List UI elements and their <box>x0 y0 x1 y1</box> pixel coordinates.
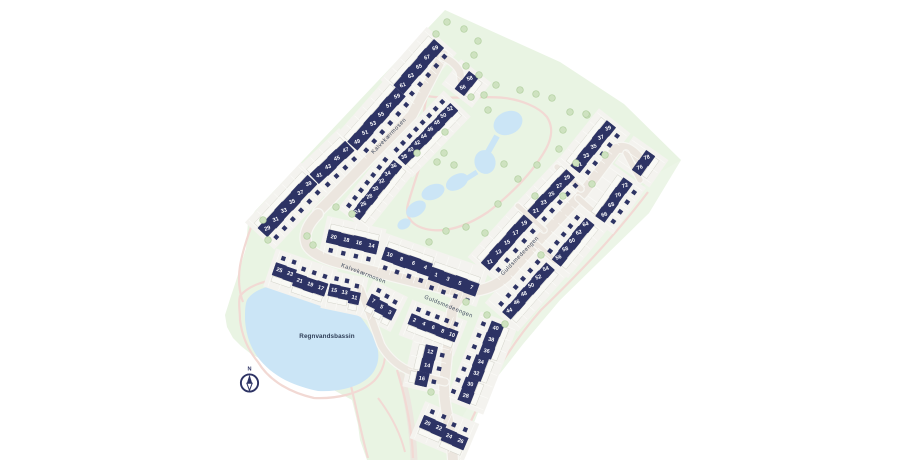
svg-text:40: 40 <box>492 325 499 332</box>
svg-text:30: 30 <box>467 381 474 388</box>
svg-text:38: 38 <box>488 337 495 344</box>
svg-text:13: 13 <box>341 289 348 296</box>
svg-text:32: 32 <box>473 370 480 377</box>
svg-text:N: N <box>247 367 251 373</box>
svg-text:12: 12 <box>427 349 434 356</box>
svg-text:36: 36 <box>483 348 490 355</box>
svg-text:11: 11 <box>351 295 358 302</box>
svg-text:Regnvandsbassin: Regnvandsbassin <box>299 333 354 340</box>
svg-text:16: 16 <box>418 376 425 383</box>
svg-text:15: 15 <box>330 287 337 294</box>
svg-text:28: 28 <box>462 393 469 400</box>
